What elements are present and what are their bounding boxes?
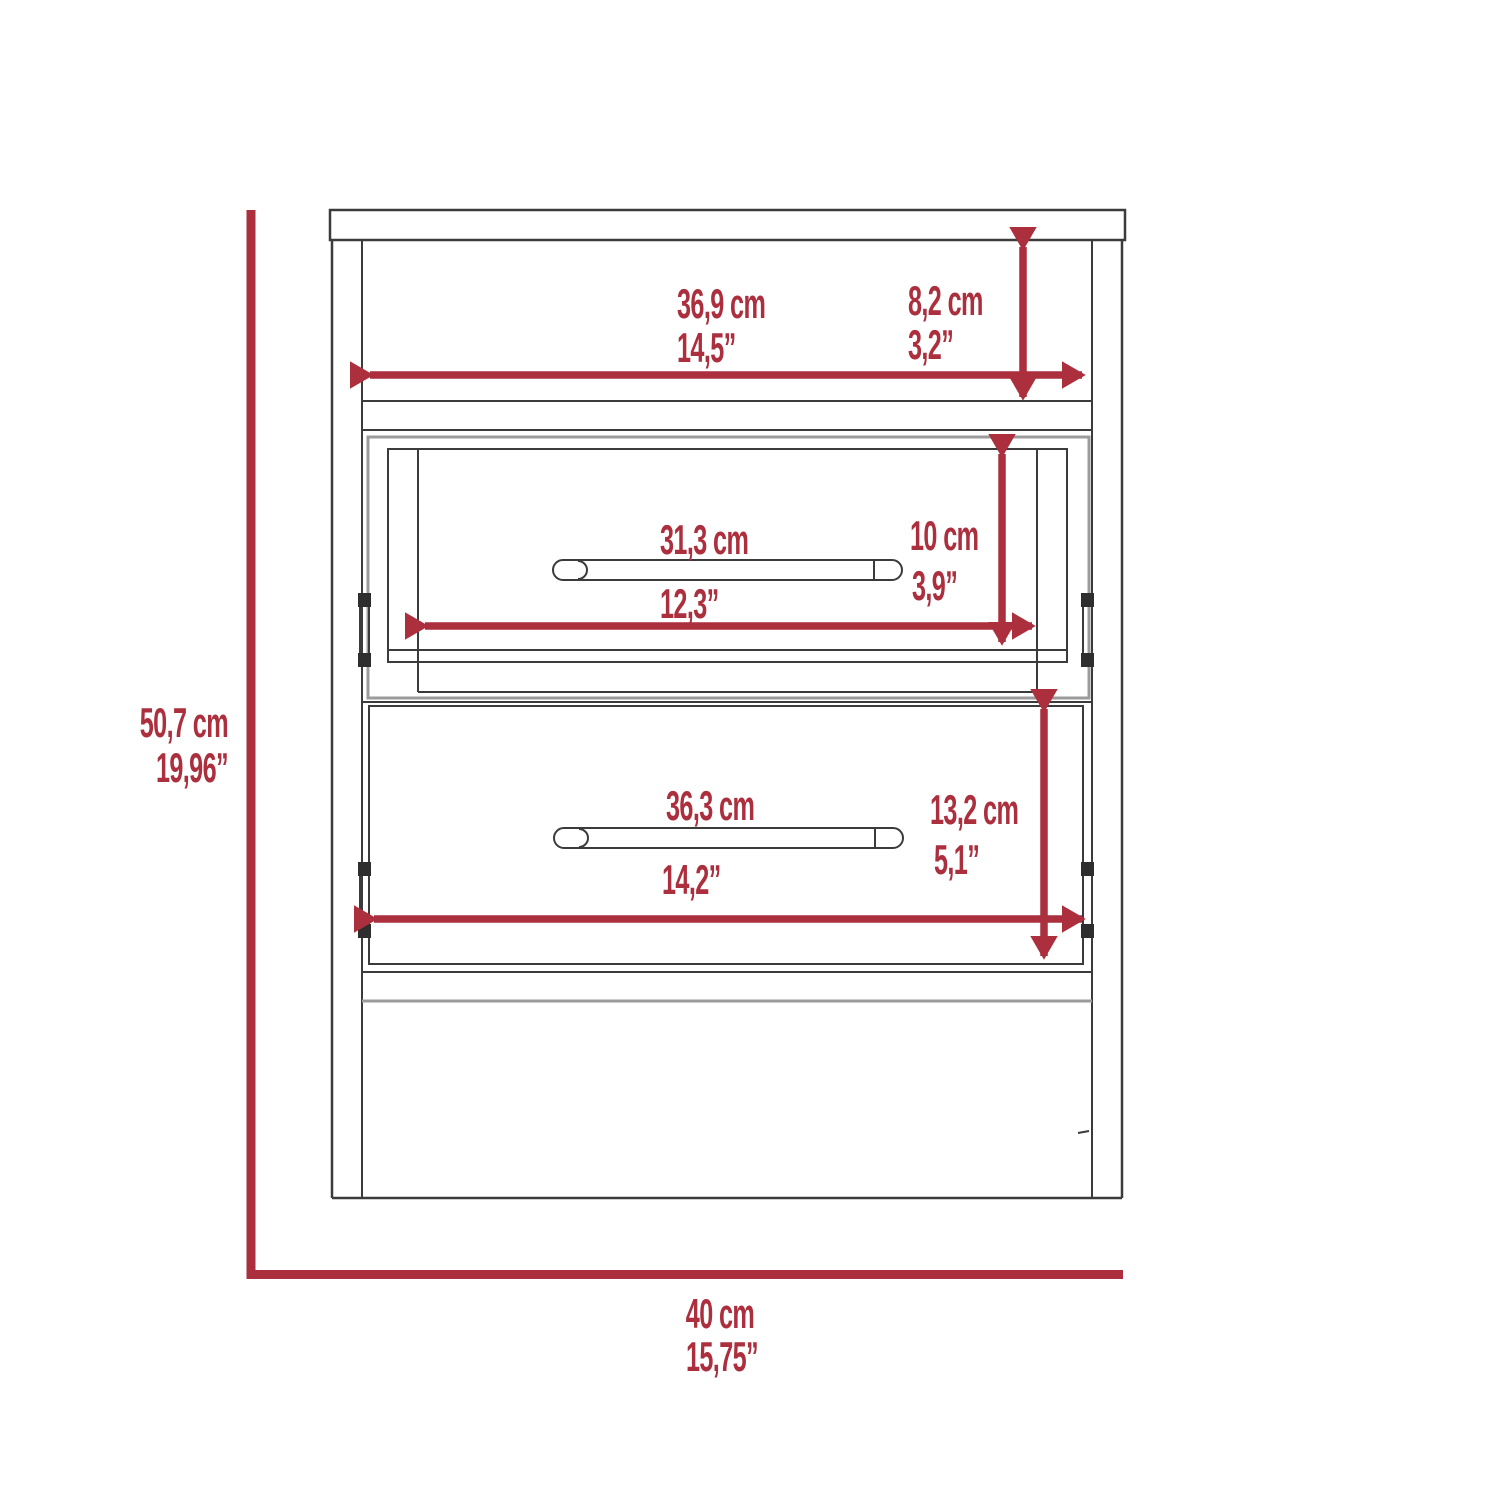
overall-width-in: 15,75” — [686, 1335, 758, 1381]
top-shelf-height-in: 3,2” — [908, 323, 953, 369]
overall-height-cm: 50,7 cm — [140, 701, 228, 747]
bottom-drawer-handle — [554, 828, 903, 848]
top-shelf-width-in: 14,5” — [677, 326, 736, 372]
right-side-panel — [1092, 240, 1122, 1198]
top-panel — [330, 210, 1125, 240]
middle-drawer-height-cm: 10 cm — [910, 514, 978, 560]
nightstand-dimension-diagram: 36,9 cm 14,5” 8,2 cm 3,2” 31,3 cm 12,3” … — [0, 0, 1500, 1500]
middle-drawer-height-in: 3,9” — [912, 564, 957, 610]
top-shelf-width-cm: 36,9 cm — [677, 282, 765, 328]
hinge-middle-left — [358, 593, 371, 667]
hinge-bottom-left — [358, 862, 371, 938]
bottom-drawer-height-cm: 13,2 cm — [930, 788, 1018, 834]
shelf-divider — [362, 401, 1092, 430]
hinges — [358, 593, 1094, 938]
bottom-drawer-width-cm: 36,3 cm — [666, 784, 754, 830]
left-side-panel — [332, 240, 362, 1198]
middle-drawer-width-cm: 31,3 cm — [660, 518, 748, 564]
dimension-diagram-page: 36,9 cm 14,5” 8,2 cm 3,2” 31,3 cm 12,3” … — [0, 0, 1500, 1500]
bottom-drawer-width-in: 14,2” — [662, 858, 721, 904]
stray-mark — [1078, 1131, 1089, 1133]
hinge-bottom-right — [1081, 862, 1094, 938]
bottom-drawer-face — [369, 706, 1083, 964]
bottom-drawer — [369, 706, 1083, 964]
middle-drawer-opening — [368, 437, 1089, 698]
overall-width-cm: 40 cm — [686, 1292, 754, 1338]
middle-drawer — [368, 437, 1089, 698]
top-shelf-height-cm: 8,2 cm — [908, 279, 983, 325]
bottom-drawer-height-in: 5,1” — [934, 838, 979, 884]
middle-drawer-width-in: 12,3” — [660, 582, 719, 628]
overall-height-in: 19,96” — [156, 746, 228, 792]
